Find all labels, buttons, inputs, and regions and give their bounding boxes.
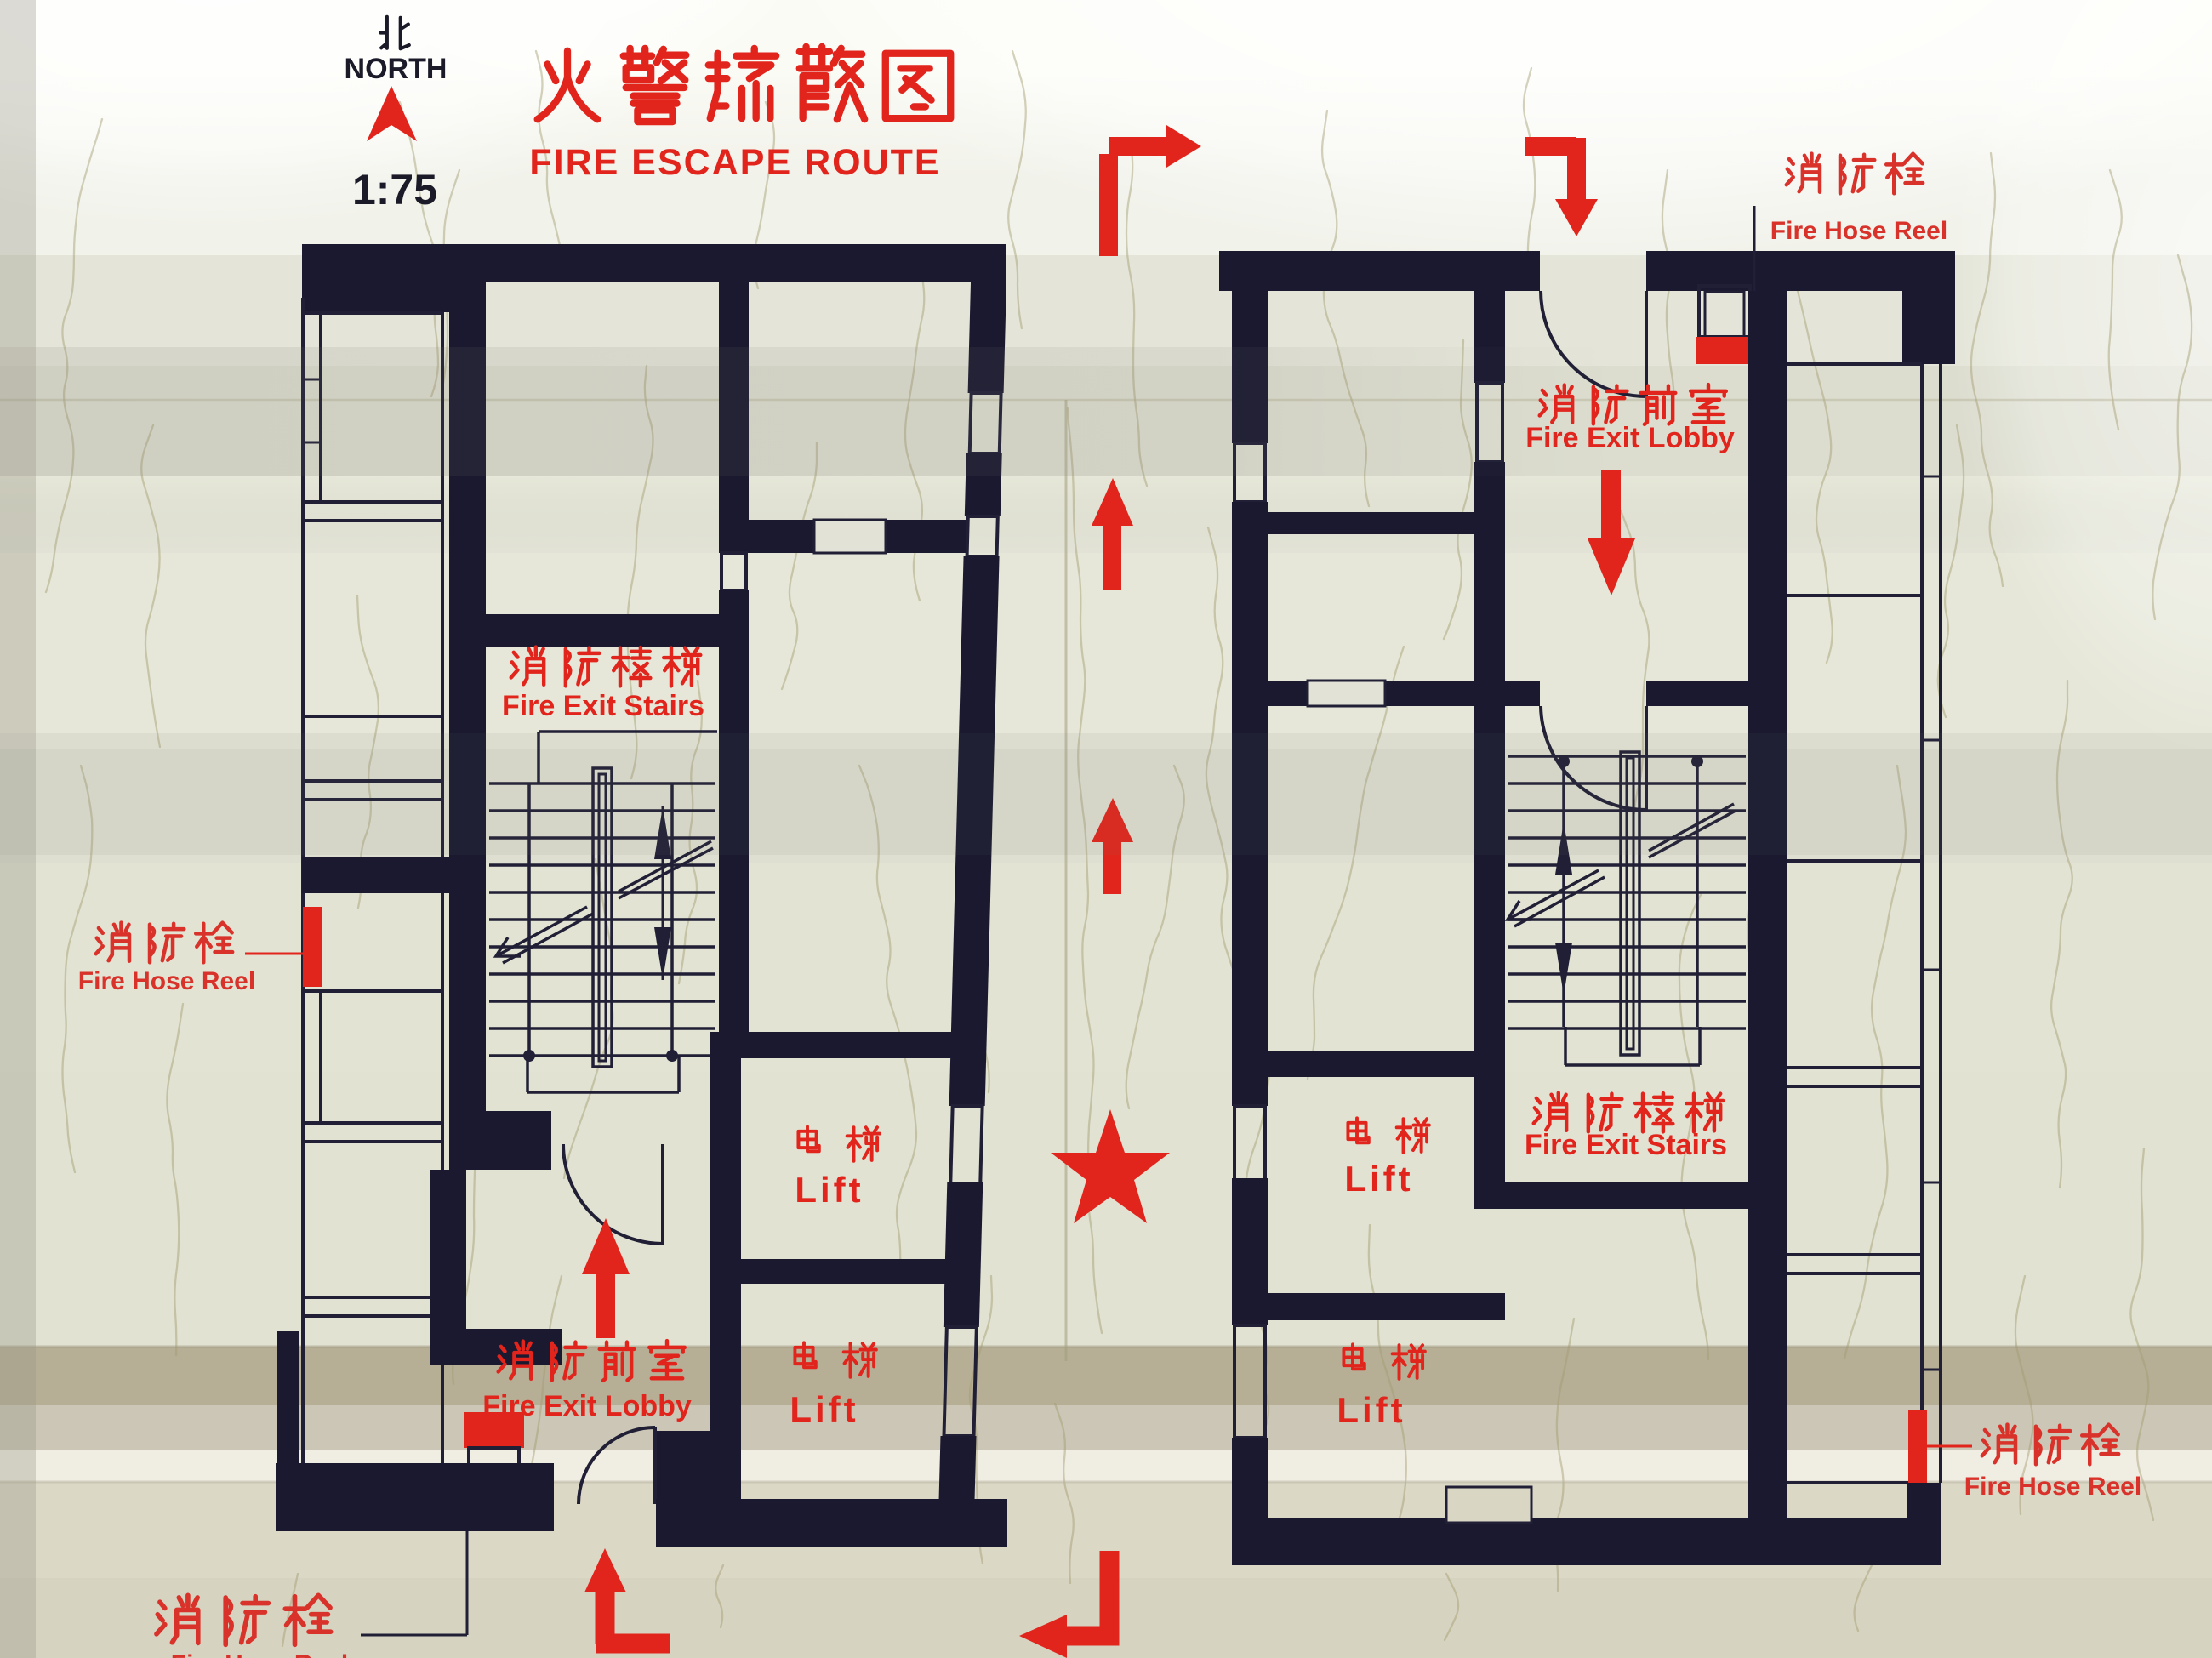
svg-text:Fire Hose Reel: Fire Hose Reel xyxy=(1770,217,1947,245)
svg-text:Fire Hose Reel: Fire Hose Reel xyxy=(171,1650,348,1658)
svg-text:Lift: Lift xyxy=(1344,1159,1413,1199)
svg-text:Lift: Lift xyxy=(790,1389,858,1429)
svg-text:Fire Exit Stairs: Fire Exit Stairs xyxy=(1525,1129,1727,1161)
svg-text:NORTH: NORTH xyxy=(345,53,448,85)
svg-text:Lift: Lift xyxy=(1337,1390,1405,1430)
svg-text:Lift: Lift xyxy=(795,1170,864,1210)
svg-text:Fire Exit Lobby: Fire Exit Lobby xyxy=(482,1390,692,1422)
svg-text:1:75: 1:75 xyxy=(352,166,437,214)
svg-text:Fire Exit Stairs: Fire Exit Stairs xyxy=(502,690,704,722)
svg-text:Fire Hose Reel: Fire Hose Reel xyxy=(78,967,255,995)
svg-text:FIRE ESCAPE ROUTE: FIRE ESCAPE ROUTE xyxy=(529,142,940,183)
svg-text:Fire Hose Reel: Fire Hose Reel xyxy=(1964,1473,2141,1501)
